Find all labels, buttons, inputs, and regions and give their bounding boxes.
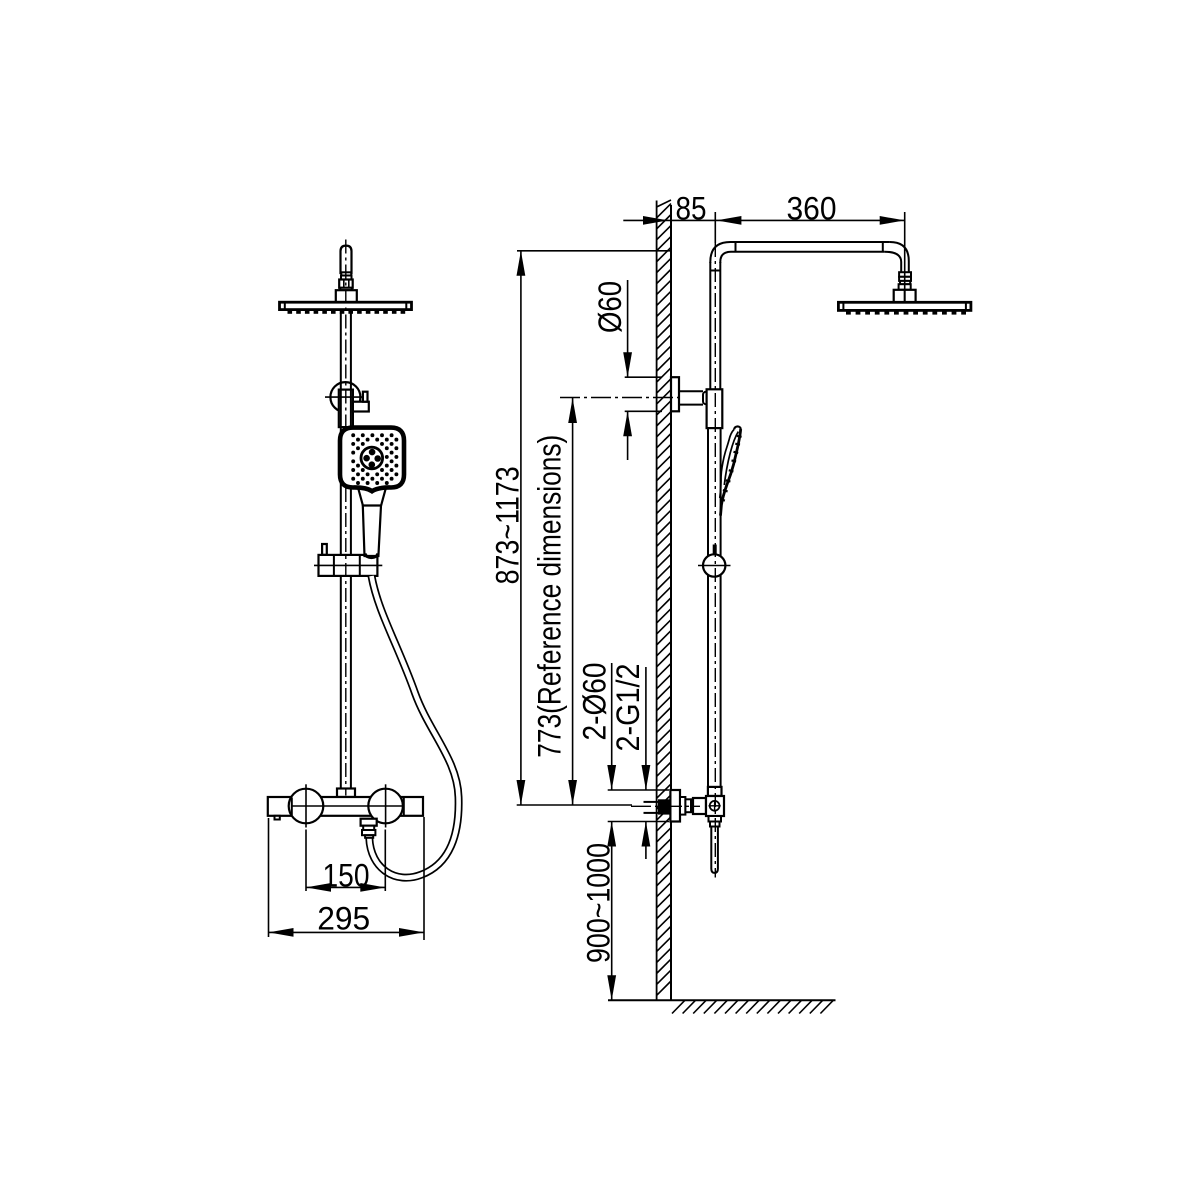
svg-text:360: 360: [787, 191, 837, 227]
svg-text:2-Ø60: 2-Ø60: [577, 663, 613, 741]
svg-text:900~1000: 900~1000: [581, 843, 617, 963]
svg-text:85: 85: [676, 191, 707, 227]
svg-text:Ø60: Ø60: [592, 281, 628, 333]
svg-text:2-G1/2: 2-G1/2: [610, 664, 646, 752]
svg-text:773(Reference dimensions): 773(Reference dimensions): [532, 435, 568, 758]
svg-text:150: 150: [323, 858, 370, 894]
svg-text:873~1173: 873~1173: [490, 466, 526, 584]
svg-text:295: 295: [317, 901, 370, 937]
